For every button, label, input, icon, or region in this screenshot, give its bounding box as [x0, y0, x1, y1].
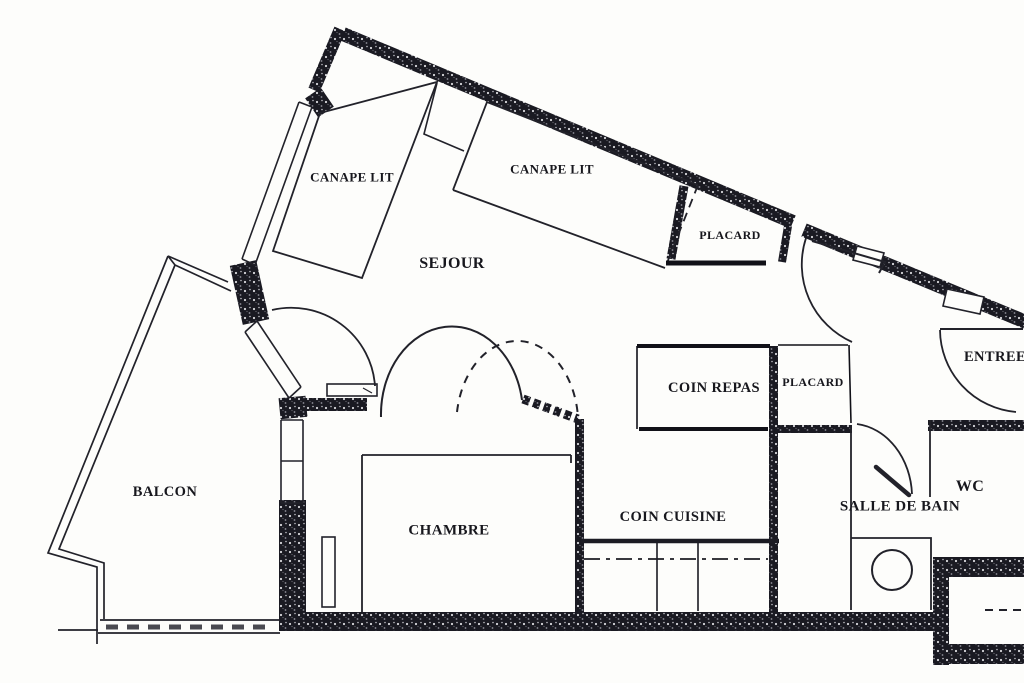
room-label-wc: WC: [956, 479, 984, 495]
wall-bottom: [279, 612, 949, 631]
room-label-balcon: BALCON: [133, 485, 197, 500]
room-label-salle-de-bain: SALLE DE BAIN: [840, 500, 960, 515]
room-label-placard-entree: PLACARD: [699, 229, 760, 241]
wall-placard-cuisine-bottom: [771, 425, 852, 433]
wall-chambre-cuisine: [575, 419, 584, 614]
room-label-sejour: SEJOUR: [419, 256, 485, 272]
wall-bottom-right-stub: [948, 644, 1024, 664]
room-label-canape-lit-2: CANAPE LIT: [510, 163, 594, 176]
window-pillar-mid: [243, 263, 256, 322]
room-label-canape-lit-1: CANAPE LIT: [310, 171, 394, 184]
floor-plan-drawing: [0, 0, 1024, 683]
wall-cuisine-right: [769, 346, 778, 613]
wall-corner-right-vertical: [933, 557, 949, 665]
room-label-placard-cuisine: PLACARD: [782, 376, 843, 388]
wall-wc-top: [928, 420, 1024, 431]
window-pillar-top: [313, 93, 326, 112]
room-label-chambre: CHAMBRE: [408, 524, 489, 539]
room-label-coin-cuisine: COIN CUISINE: [620, 510, 727, 525]
wall-wc-bottom: [944, 557, 1024, 577]
wall-left-solid: [279, 500, 306, 616]
floor-plan-page: CANAPE LIT CANAPE LIT SEJOUR PLACARD COI…: [0, 0, 1024, 683]
room-label-entree: ENTREE: [964, 350, 1024, 365]
wall-sejour-chambre: [280, 398, 367, 411]
room-label-coin-repas: COIN REPAS: [668, 381, 760, 396]
